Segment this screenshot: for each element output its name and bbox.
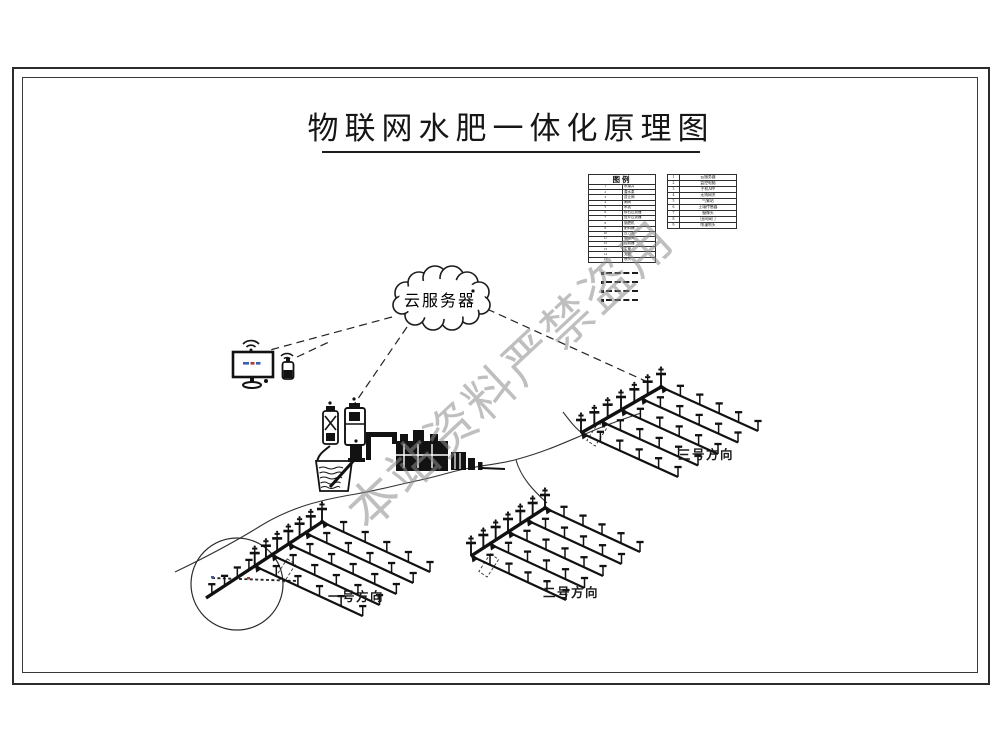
filter-top-1 xyxy=(400,434,408,441)
legend-line-sample xyxy=(606,290,638,292)
screen-pixel-blue2 xyxy=(256,362,261,365)
monitor-base xyxy=(243,382,261,388)
legend-line-samples xyxy=(606,272,638,308)
field3-label: 三号方向 xyxy=(678,444,734,463)
terrain-branch-field2 xyxy=(516,460,547,503)
legend-row-no: 15 xyxy=(589,257,623,262)
phone-lower xyxy=(284,370,293,378)
tank2-sensor-dot xyxy=(352,397,355,400)
legend-table-main: 图例 1水源井2潜水泵3逆止阀4闸阀5水表6砂石过滤器7叠片过滤器8施肥机9肥料… xyxy=(588,174,656,263)
outlet-pipe xyxy=(482,468,505,469)
legend-left-body: 1水源井2潜水泵3逆止阀4闸阀5水表6砂石过滤器7叠片过滤器8施肥机9肥料桶10… xyxy=(589,185,656,263)
tank2-inner xyxy=(349,412,360,421)
legend-row: 9喷灌喷头 xyxy=(668,223,737,229)
legend-line-sample xyxy=(606,299,638,301)
screen-pixel-red xyxy=(251,362,255,365)
pump-sensor-dot xyxy=(354,439,357,442)
tank1-cap xyxy=(326,406,335,411)
tank1-valve xyxy=(326,433,335,441)
lateral-pipe xyxy=(661,387,758,431)
legend-title: 图例 xyxy=(589,175,656,185)
schematic-canvas: 云服务器 xyxy=(0,0,1000,750)
sprinkler-field-1 xyxy=(206,501,434,616)
legend-row-label: 喷头 xyxy=(622,257,656,262)
phone-wifi-icon xyxy=(281,354,293,359)
drawing-page: 物联网水肥一体化原理图 图例 1水源井2潜水泵3逆止阀4闸阀5水表6砂石过滤器7… xyxy=(0,0,1000,750)
wifi-icon xyxy=(243,341,259,347)
lateral-pipe xyxy=(322,522,430,572)
outlet-valve-1 xyxy=(468,458,475,470)
fertigation-station xyxy=(316,397,505,491)
detail-circle xyxy=(191,538,283,630)
lateral-pipe xyxy=(305,533,413,583)
legend-row: 15喷头 xyxy=(589,257,656,262)
cloud-label: 云服务器 xyxy=(404,292,476,310)
screen-pixel-blue1 xyxy=(243,362,249,365)
handheld-device xyxy=(281,354,294,379)
main-pipe xyxy=(206,522,322,598)
field1-label: 一号方向 xyxy=(328,586,384,605)
detail-speck-red xyxy=(247,577,250,579)
lateral-pipe xyxy=(545,508,640,552)
tank2-cap xyxy=(349,403,360,409)
cloud-dot xyxy=(471,289,474,292)
legend-line-sample xyxy=(606,281,638,283)
detail-speck-blue xyxy=(211,576,214,578)
tank1-sensor-dot xyxy=(328,401,331,404)
water-tank xyxy=(316,461,352,491)
legend-right-body: 1云服务器2监控电脑3手机APP4无线网关5气象站6土壤传感器7摄像头8田间阀门… xyxy=(668,175,737,229)
link-phone-to-cloud xyxy=(297,341,331,357)
link-cloud-to-field3 xyxy=(487,309,652,384)
legend-line-sample xyxy=(606,272,638,274)
monitor-mouse-dot xyxy=(264,379,268,383)
legend-row-no: 9 xyxy=(668,223,680,229)
pump-base xyxy=(348,458,365,462)
filter-top-3 xyxy=(430,434,438,441)
lateral-pipe xyxy=(508,532,603,576)
sprinkler-fields xyxy=(206,366,762,616)
monitor-workstation xyxy=(233,341,273,388)
lateral-pipe xyxy=(527,520,622,564)
lateral-pipe xyxy=(641,399,738,443)
legend-table-secondary: 1云服务器2监控电脑3手机APP4无线网关5气象站6土壤传感器7摄像头8田间阀门… xyxy=(667,174,737,229)
filter-top-2 xyxy=(413,430,424,441)
pump xyxy=(350,446,362,459)
outlet-valve-2 xyxy=(478,462,483,470)
field2-label: 二号方向 xyxy=(543,582,599,601)
link-cloud-to-fert-tank xyxy=(353,327,407,406)
cloud-server: 云服务器 xyxy=(393,266,490,330)
valve-cluster xyxy=(451,452,466,470)
link-cloud-to-monitor xyxy=(270,317,392,350)
lateral-pipe xyxy=(581,433,678,477)
legend-row-label: 喷灌喷头 xyxy=(680,223,737,229)
